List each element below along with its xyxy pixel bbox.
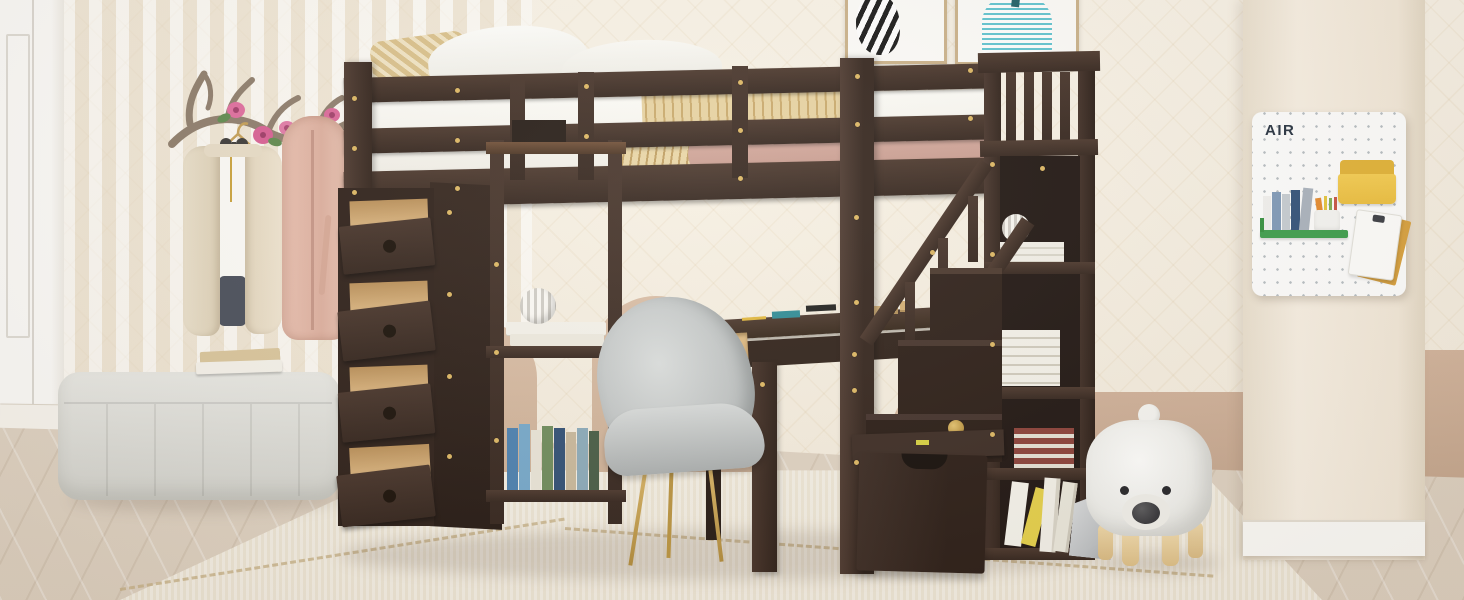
- screw: [968, 116, 973, 121]
- striped-sphere-vase: [520, 288, 556, 324]
- screw: [494, 438, 499, 443]
- screw: [584, 134, 589, 139]
- jeans: [219, 276, 246, 326]
- screw: [852, 388, 857, 393]
- stair-step-1: [930, 268, 1002, 346]
- screw: [447, 374, 452, 379]
- screw: [930, 250, 935, 255]
- shelf-book: [519, 424, 530, 490]
- screw: [494, 262, 499, 267]
- stair-rail-baluster: [968, 196, 978, 262]
- storage-box-handle-cutout: [901, 453, 947, 469]
- pegboard-cup: [1314, 210, 1340, 232]
- screw: [447, 210, 452, 215]
- bench-seam: [298, 404, 300, 496]
- pegboard-air-label: AIR: [1265, 122, 1295, 139]
- stair-baluster: [1042, 72, 1052, 142]
- screw: [738, 80, 743, 85]
- stair-shelf: [984, 468, 1095, 480]
- drawer-knob: [382, 324, 396, 338]
- teal-art: [982, 0, 1052, 55]
- bench-seam: [250, 404, 252, 496]
- screw: [738, 176, 743, 181]
- drawer-knob: [382, 406, 396, 420]
- stair-rail-baluster: [905, 282, 915, 348]
- zebra-art: [856, 0, 900, 55]
- screw: [854, 460, 859, 465]
- shelf-board-top: [486, 142, 626, 154]
- drawer-knob: [382, 239, 396, 253]
- bear-nose: [1132, 502, 1160, 524]
- pegboard: AIR: [1252, 112, 1406, 296]
- pegboard-book: [1282, 194, 1290, 232]
- door-inset-panel: [6, 34, 30, 338]
- screw: [990, 162, 995, 167]
- shelf-book: [566, 432, 576, 490]
- screw: [447, 292, 452, 297]
- chair-seat: [602, 400, 766, 477]
- screw: [455, 138, 460, 143]
- screw: [352, 96, 357, 101]
- left-door-panel: [0, 0, 64, 452]
- notepad-clip: [1372, 214, 1385, 223]
- yellow-tag: [916, 440, 929, 445]
- screw: [494, 350, 499, 355]
- screw: [968, 68, 973, 73]
- cubby-books-red: [1014, 428, 1074, 468]
- shelf-book: [589, 431, 599, 490]
- screw: [854, 215, 859, 220]
- drawer-knob: [382, 489, 396, 503]
- shelf-white-book: [510, 334, 604, 346]
- zebra-art-frame: [845, 0, 947, 64]
- bench-seam-h: [64, 402, 332, 404]
- screw: [855, 74, 860, 79]
- cardigan-collar: [204, 144, 262, 157]
- screw: [352, 190, 357, 195]
- pegboard-book: [1299, 188, 1314, 233]
- robe-opening: [311, 130, 314, 330]
- bear-stool-body: [1086, 420, 1212, 536]
- door-groove: [32, 0, 34, 440]
- screw: [455, 186, 460, 191]
- cubby-books-stack: [1002, 330, 1060, 386]
- screw: [738, 128, 743, 133]
- shelf-book: [577, 428, 588, 490]
- column-baseboard: [1243, 520, 1425, 556]
- drawer-front-3: [338, 383, 436, 442]
- pegboard-book: [1272, 192, 1281, 232]
- screw: [990, 252, 995, 257]
- screw: [455, 88, 460, 93]
- bench: [58, 372, 340, 500]
- shelf-book: [531, 430, 541, 490]
- screw: [584, 84, 589, 89]
- lower-wall-tan-right: [1420, 350, 1464, 480]
- bench-seam: [202, 404, 204, 496]
- drawer-front-1: [339, 217, 436, 274]
- screw: [855, 122, 860, 127]
- shelf-decor-box: [512, 120, 566, 142]
- pegboard-green-shelf: [1260, 230, 1348, 238]
- stair-baluster: [1060, 72, 1070, 142]
- bear-eye: [1120, 486, 1129, 495]
- stair-mid-rail: [980, 139, 1098, 157]
- pegboard-pocket: [1338, 174, 1396, 204]
- bench-seam: [106, 404, 108, 496]
- shelf-post-front: [490, 140, 504, 524]
- shelf-book: [507, 428, 518, 490]
- shelf-book: [542, 426, 553, 490]
- stair-top-rail: [978, 51, 1100, 73]
- screw: [990, 342, 995, 347]
- stair-step-2: [898, 340, 1002, 420]
- screw: [854, 300, 859, 305]
- pegboard-shelf-end: [1260, 218, 1264, 232]
- stair-baluster: [1024, 72, 1034, 142]
- pegboard-notepad: [1348, 209, 1403, 281]
- screw: [990, 432, 995, 437]
- bear-eye: [1162, 486, 1171, 495]
- desk-notebook-teal: [772, 310, 800, 318]
- screw: [852, 352, 857, 357]
- screw: [447, 454, 452, 459]
- screw: [352, 146, 357, 151]
- cardigan-right: [245, 146, 282, 334]
- screw: [1040, 166, 1045, 171]
- shelf-board-low: [486, 490, 626, 502]
- desk-leg-front: [752, 362, 777, 572]
- bedroom-scene: AIR: [0, 0, 1464, 600]
- stair-baluster: [1006, 72, 1016, 142]
- pegboard-book: [1263, 196, 1271, 232]
- screw: [760, 382, 765, 387]
- cardigan-left: [183, 146, 220, 336]
- bench-seam: [154, 404, 156, 496]
- storage-box: [856, 452, 987, 573]
- shelf-book: [554, 428, 565, 490]
- necklace: [230, 156, 232, 202]
